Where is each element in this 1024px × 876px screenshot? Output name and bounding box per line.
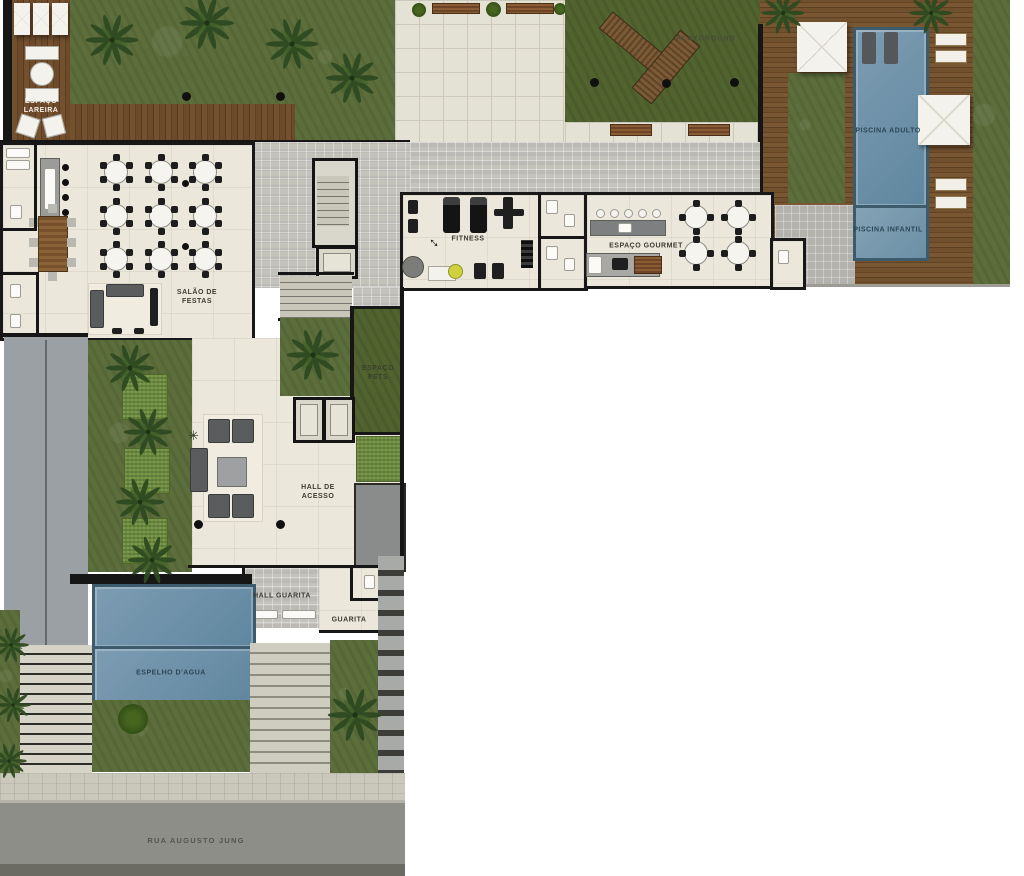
exercise-bike <box>408 200 418 214</box>
salao-de-festas-label: SALÃO DE FESTAS <box>170 288 224 306</box>
shrub <box>486 2 501 17</box>
espaco-gourmet-label: ESPAÇO GOURMET <box>581 241 711 250</box>
pool-umbrella <box>918 95 970 145</box>
wall <box>0 228 37 231</box>
round-table <box>104 204 128 228</box>
exercise-bike <box>408 219 418 233</box>
armchair <box>232 419 254 443</box>
treadmill <box>470 197 487 233</box>
palm-tree <box>0 626 30 664</box>
lareira-table <box>30 62 54 86</box>
playground-label: PLAYGROUND <box>666 34 746 43</box>
round-table <box>149 247 173 271</box>
bar-sink <box>618 223 632 233</box>
palm-tree <box>178 0 236 52</box>
bar-stool <box>652 209 661 218</box>
palm-tree <box>126 534 178 586</box>
pergola-panel <box>14 3 30 35</box>
sun-lounger <box>935 196 967 209</box>
wall <box>36 272 39 335</box>
sofa <box>106 284 144 297</box>
stair-flight <box>317 176 349 226</box>
toilet <box>10 205 22 219</box>
kettlebell-stand <box>492 263 504 279</box>
palm-tree <box>326 686 384 744</box>
round-table <box>726 205 750 229</box>
espaco-lareira-label: ESPAÇO LAREIRA <box>17 97 65 115</box>
in-pool-lounger <box>862 32 876 64</box>
armchair <box>232 494 254 518</box>
walkway-paving <box>410 142 760 192</box>
bench <box>688 124 730 136</box>
tv-panel <box>150 288 158 326</box>
shrub <box>118 704 148 734</box>
palm-tree <box>104 342 156 394</box>
round-table <box>193 204 217 228</box>
light-dot <box>182 92 191 101</box>
wall <box>34 142 37 230</box>
wall <box>3 0 12 142</box>
toilet <box>564 258 575 271</box>
bar-stool <box>610 209 619 218</box>
wall <box>538 236 584 239</box>
pergola-panel <box>52 3 68 35</box>
light-dot <box>194 520 203 529</box>
patio-paving <box>395 0 565 142</box>
wall <box>400 287 404 567</box>
paving-patch <box>353 287 404 307</box>
wall <box>278 272 354 275</box>
sun-lounger <box>935 178 967 191</box>
shelf <box>6 148 30 158</box>
pool-grass-patch <box>788 73 845 203</box>
toilet <box>10 284 21 298</box>
round-table <box>104 247 128 271</box>
round-table <box>104 160 128 184</box>
stool <box>62 179 69 186</box>
bench <box>610 124 652 136</box>
stair-flight <box>280 276 352 320</box>
counter <box>282 610 316 619</box>
medicine-ball <box>402 256 424 278</box>
espelho-dagua-label: ESPELHO D'AGUA <box>116 668 226 677</box>
palm-tree <box>908 0 954 36</box>
wall <box>350 432 404 435</box>
kettlebell-stand <box>474 263 486 279</box>
shower <box>546 246 558 260</box>
dining-chairs <box>48 238 57 247</box>
lareira-sofa <box>25 46 59 60</box>
elevator <box>293 397 325 443</box>
speaker <box>112 328 122 334</box>
sun-lounger <box>935 50 967 63</box>
light-dot <box>276 92 285 101</box>
guarita-label: GUARITA <box>319 615 379 624</box>
light-dot <box>182 243 189 250</box>
dumbbell-rack <box>521 240 533 268</box>
shower <box>546 200 558 214</box>
light-dot <box>730 78 739 87</box>
toilet <box>10 314 21 328</box>
water-mirror-pool <box>92 584 256 650</box>
hall-de-acesso-label: HALL DE ACESSO <box>291 483 345 501</box>
toilet <box>564 214 575 227</box>
floor-plan: ESPAÇO LAREIRA PLAYGROUND PISCINA ADULTO… <box>0 0 1024 876</box>
piscina-infantil-label: PISCINA INFANTIL <box>843 225 933 234</box>
street-edge <box>0 864 405 876</box>
toilet <box>364 575 375 589</box>
armchair <box>208 494 230 518</box>
coffee-table <box>217 457 247 487</box>
sidewalk <box>0 773 405 803</box>
round-table <box>193 247 217 271</box>
palm-tree <box>285 327 341 383</box>
stool <box>62 194 69 201</box>
palm-tree <box>84 12 140 68</box>
wall <box>350 568 353 601</box>
weight-machine <box>494 209 524 216</box>
shelf <box>6 160 30 170</box>
round-table <box>149 160 173 184</box>
sofa <box>190 448 208 492</box>
pergola-panel <box>33 3 49 35</box>
light-dot <box>590 78 599 87</box>
plant-pot: ✳ <box>188 428 199 444</box>
bottom-garden <box>92 700 250 772</box>
palm-tree <box>264 16 320 72</box>
round-table <box>726 241 750 265</box>
fitness-label: FITNESS <box>438 234 498 243</box>
hall-guarita-label: HALL GUARITA <box>242 591 322 600</box>
exercise-ball <box>448 264 463 279</box>
shrub <box>412 3 426 17</box>
light-dot <box>182 180 189 187</box>
kitchen-hood <box>44 168 56 210</box>
cooktop <box>612 258 628 270</box>
bar-stool <box>638 209 647 218</box>
pool-grass-right <box>973 0 1010 287</box>
bar-stool <box>624 209 633 218</box>
palm-tree <box>0 686 32 724</box>
speaker <box>134 328 144 334</box>
bench <box>432 3 480 14</box>
in-pool-lounger <box>884 32 898 64</box>
wood-stools <box>634 256 662 274</box>
toilet <box>778 250 789 264</box>
espaco-pets-label: ESPAÇO PETS <box>356 364 400 382</box>
bar-stool <box>596 209 605 218</box>
hedge-square <box>356 436 402 482</box>
round-table <box>193 160 217 184</box>
wc-room <box>770 238 806 290</box>
fridge <box>588 256 602 274</box>
sofa <box>90 290 104 328</box>
street-name-label: RUA AUGUSTO JUNG <box>111 836 281 846</box>
playground-walk <box>565 122 760 142</box>
wall <box>0 272 36 275</box>
light-dot <box>276 520 285 529</box>
top-deck-strip <box>70 104 295 142</box>
round-table <box>149 204 173 228</box>
elevator <box>323 397 355 443</box>
round-table <box>684 205 708 229</box>
palm-tree <box>122 406 174 458</box>
palm-tree <box>760 0 806 36</box>
piscina-adulto-label: PISCINA ADULTO <box>848 126 928 135</box>
wide-steps <box>250 643 330 773</box>
armchair <box>208 419 230 443</box>
palm-tree <box>114 476 166 528</box>
stool <box>62 209 69 216</box>
treadmill <box>443 197 460 233</box>
stool <box>62 164 69 171</box>
palm-tree <box>0 742 28 780</box>
palm-tree <box>324 50 380 106</box>
light-dot <box>662 79 671 88</box>
bench <box>506 3 554 14</box>
